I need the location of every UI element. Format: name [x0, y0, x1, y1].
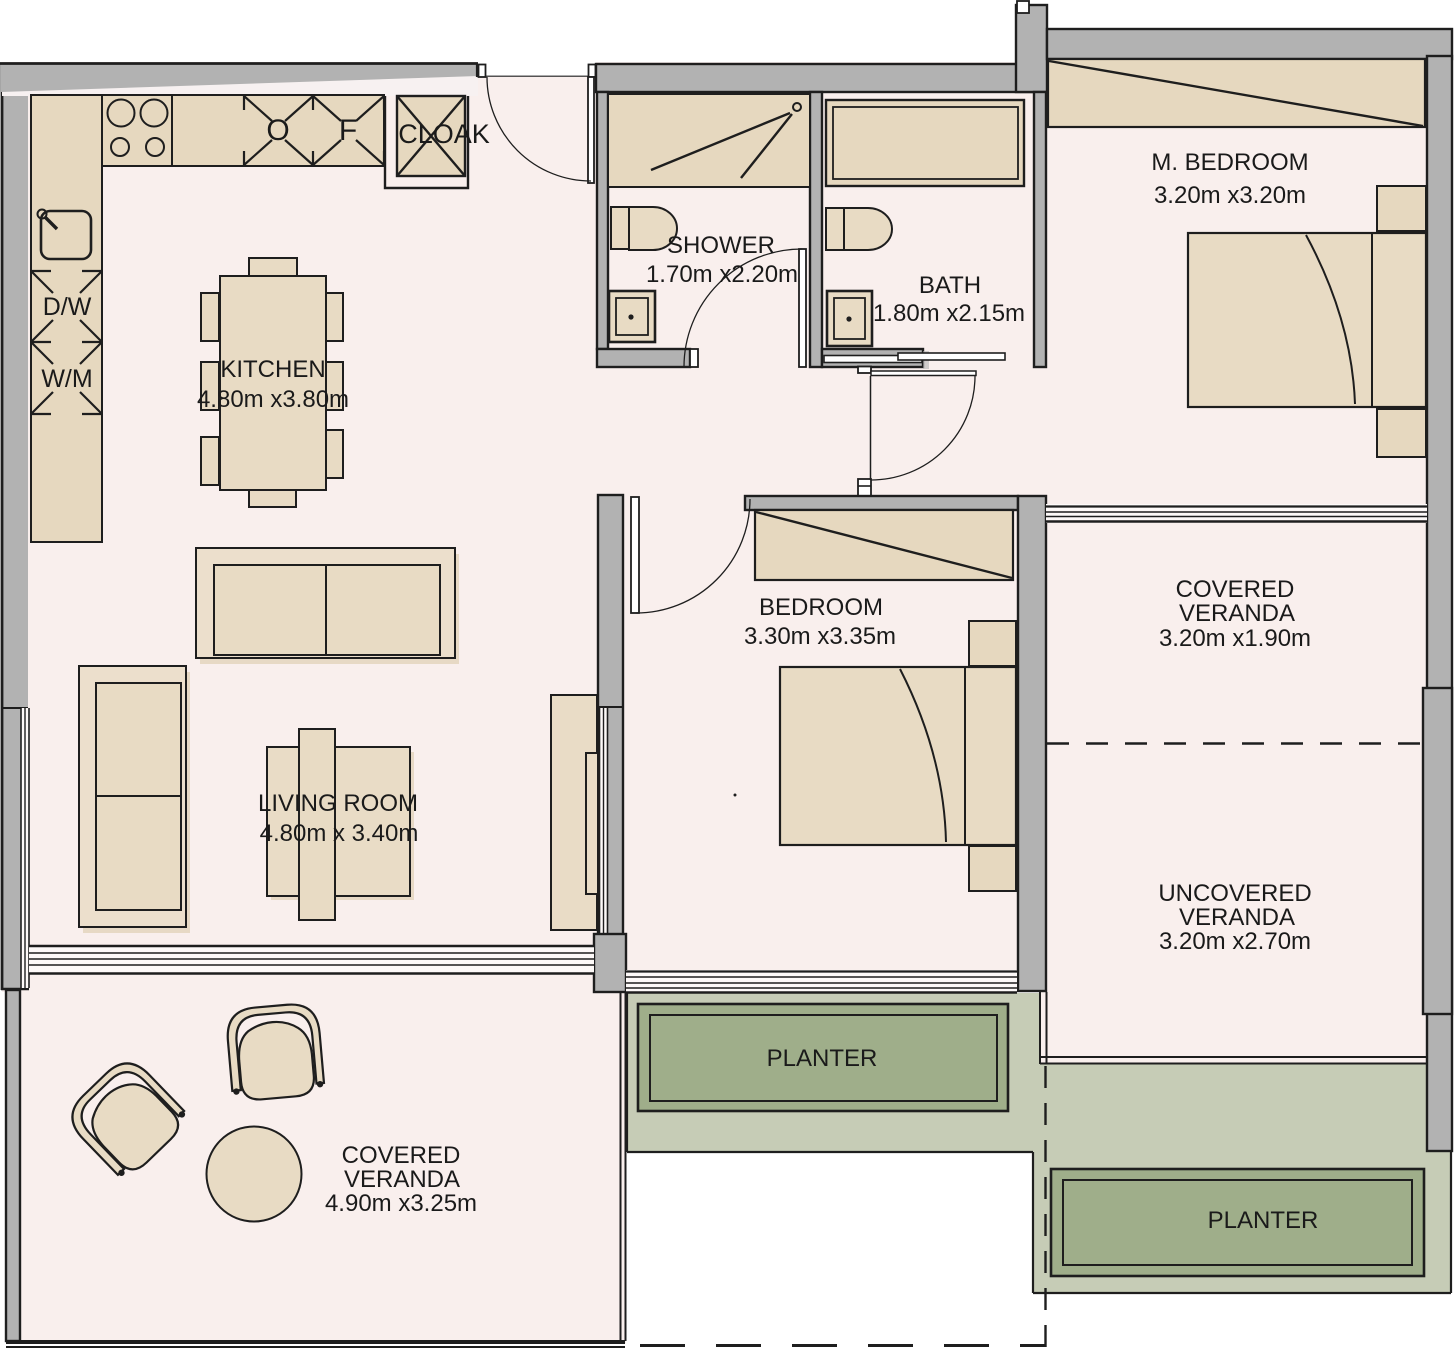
svg-text:BATH: BATH	[919, 272, 981, 299]
svg-text:1.80m x2.15m: 1.80m x2.15m	[873, 300, 1025, 327]
svg-text:3.30m x3.35m: 3.30m x3.35m	[744, 623, 896, 650]
svg-text:VERANDA: VERANDA	[1179, 600, 1295, 627]
svg-text:W/M: W/M	[41, 365, 92, 393]
svg-text:4.80m x 3.40m: 4.80m x 3.40m	[260, 820, 419, 847]
svg-text:3.20m x2.70m: 3.20m x2.70m	[1159, 928, 1311, 955]
svg-text:O: O	[266, 114, 289, 147]
svg-text:PLANTER: PLANTER	[1208, 1207, 1319, 1234]
svg-text:CLOAK: CLOAK	[398, 119, 490, 149]
svg-text:VERANDA: VERANDA	[344, 1166, 460, 1193]
svg-text:3.20m x3.20m: 3.20m x3.20m	[1154, 182, 1306, 209]
svg-text:M. BEDROOM: M. BEDROOM	[1151, 149, 1308, 176]
svg-text:PLANTER: PLANTER	[767, 1045, 878, 1072]
svg-text:KITCHEN: KITCHEN	[220, 356, 325, 383]
svg-text:F: F	[339, 114, 357, 147]
svg-text:4.90m x3.25m: 4.90m x3.25m	[325, 1190, 477, 1217]
svg-text:VERANDA: VERANDA	[1179, 904, 1295, 931]
svg-text:BEDROOM: BEDROOM	[759, 594, 883, 621]
svg-text:SHOWER: SHOWER	[667, 232, 775, 259]
svg-text:COVERED: COVERED	[1176, 576, 1295, 603]
svg-text:1.70m x2.20m: 1.70m x2.20m	[646, 261, 798, 288]
svg-text:3.20m x1.90m: 3.20m x1.90m	[1159, 625, 1311, 652]
svg-text:COVERED: COVERED	[342, 1142, 461, 1169]
svg-text:4.80m x3.80m: 4.80m x3.80m	[197, 386, 349, 413]
svg-text:LIVING ROOM: LIVING ROOM	[258, 790, 418, 817]
svg-text:D/W: D/W	[43, 293, 92, 321]
svg-text:UNCOVERED: UNCOVERED	[1158, 880, 1311, 907]
